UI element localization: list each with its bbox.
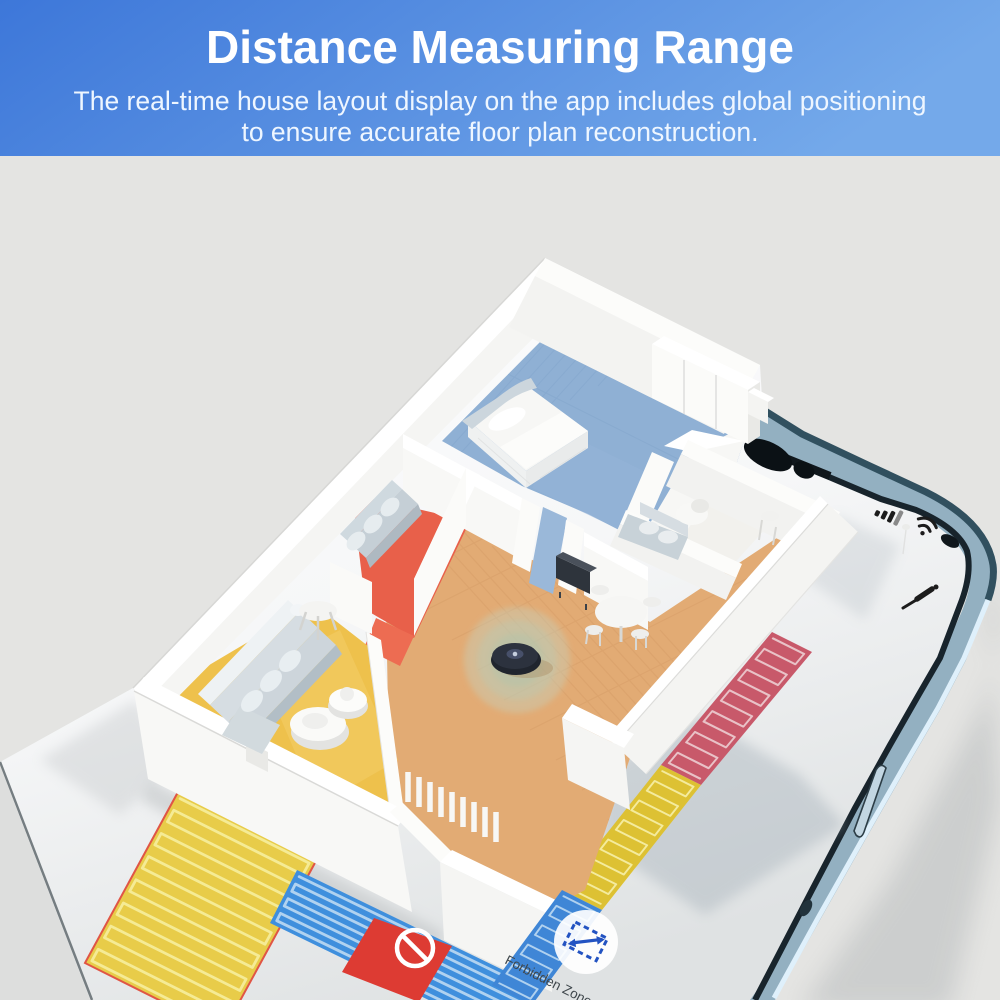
svg-text:The real-time house layout dis: The real-time house layout display on th…: [74, 86, 927, 116]
svg-text:to ensure accurate floor plan: to ensure accurate floor plan reconstruc…: [241, 117, 758, 147]
svg-text:Distance Measuring Range: Distance Measuring Range: [206, 21, 794, 73]
